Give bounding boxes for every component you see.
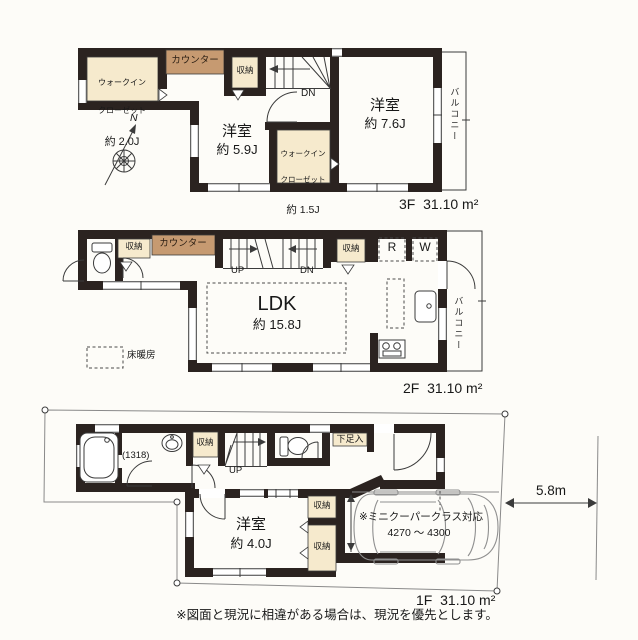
storage-1f-bottom-label: 収納 (313, 542, 330, 552)
wic-small-size: 約 1.5J (281, 204, 326, 216)
door-marker (300, 547, 308, 559)
storage-2f-right-label: 収納 (342, 244, 359, 254)
stairs-2f-dn-arrow (288, 245, 296, 253)
counter-2f-label: カウンター (159, 239, 207, 250)
toilet-2f-icon (92, 243, 112, 273)
bedroom-40-name: 洋室 (236, 516, 266, 533)
road-edge-line (596, 436, 598, 580)
washer-label: W (419, 241, 430, 255)
kitchen-2f (379, 279, 436, 358)
toilet-1f-icon (280, 437, 308, 456)
bath-size-label: (1318) (122, 451, 149, 462)
site-width-label: 5.8m (536, 483, 566, 499)
storage-1f-mid-label: 収納 (313, 501, 330, 511)
stairs-3f (266, 57, 331, 89)
bathtub-icon (80, 433, 118, 482)
stairs-dn-3f-label: DN (301, 88, 315, 100)
door-arc-2f-balcony (447, 261, 475, 289)
disclaimer-text: ※図面と現況に相違がある場合は、現況を優先とします。 (176, 608, 498, 622)
stairs-1f (225, 433, 267, 467)
balcony-2f-label: バルコニー (453, 296, 463, 351)
shoe-storage-label: 下足入 (336, 434, 363, 444)
bedroom-76-name: 洋室 (370, 97, 400, 114)
counter-3f-label: カウンター (171, 56, 219, 67)
stairs-up-2f-label: UP (231, 266, 244, 277)
wic-large-line2: クローゼット (98, 106, 146, 115)
stairs-dn-2f-label: DN (300, 266, 314, 277)
wic-small-label: ウォークイン クローゼット 約 1.5J (281, 133, 326, 225)
stairs-3f-arrow (269, 65, 278, 73)
balcony-3f-label: バルコニー (449, 87, 459, 142)
bedroom-76-size: 約 7.6J (364, 117, 405, 132)
wic-small-line2: クローゼット (281, 176, 326, 185)
stairs-1f-arrow (258, 438, 266, 446)
door-marker (300, 521, 308, 533)
car-note-line1: ※ミニクーパークラス対応 (359, 511, 483, 523)
washbasin-icon (162, 435, 182, 452)
door-marker (159, 89, 167, 101)
storage-1f-top-label: 収納 (196, 438, 213, 448)
ldk-name: LDK (258, 293, 297, 316)
stairs-up-1f-label: UP (229, 466, 242, 477)
area-3f-label: 3F 31.10 m² (399, 196, 478, 212)
wic-large-line1: ウォークイン (98, 78, 146, 87)
bedroom-40-size: 約 4.0J (230, 537, 271, 552)
wic-small-line1: ウォークイン (281, 150, 326, 159)
door-arc-3f (267, 92, 297, 122)
storage-2f-left-label: 収納 (125, 242, 142, 252)
area-1f-label: 1F 31.10 m² (416, 592, 495, 608)
compass-n-label: N (130, 112, 138, 124)
door-marker (198, 465, 210, 474)
bedroom-59-size: 約 5.9J (216, 143, 257, 158)
floor-heating-legend-box (87, 347, 123, 368)
kitchen-sink-icon (415, 291, 436, 322)
ldk-size: 約 15.8J (253, 318, 301, 333)
storage-3f-label: 収納 (236, 66, 253, 76)
car-note-line2: 4270 〜 4300 (387, 527, 450, 539)
floor-heating-label: 床暖房 (127, 351, 156, 362)
wic-large-label: ウォークイン クローゼット 約 2.0J (98, 60, 146, 157)
area-2f-label: 2F 31.10 m² (403, 380, 482, 396)
door-arc-bathroom (127, 461, 152, 486)
door-arc-entrance (394, 433, 431, 470)
bedroom-59-name: 洋室 (222, 123, 252, 140)
wic-large-size: 約 2.0J (98, 136, 146, 149)
floor-plan-page: ウォークイン クローゼット 約 2.0J カウンター 収納 DN 洋室 約 5.… (0, 0, 638, 640)
refrigerator-label: R (388, 241, 397, 255)
door-marker (342, 265, 354, 274)
kitchen-island (387, 279, 404, 328)
